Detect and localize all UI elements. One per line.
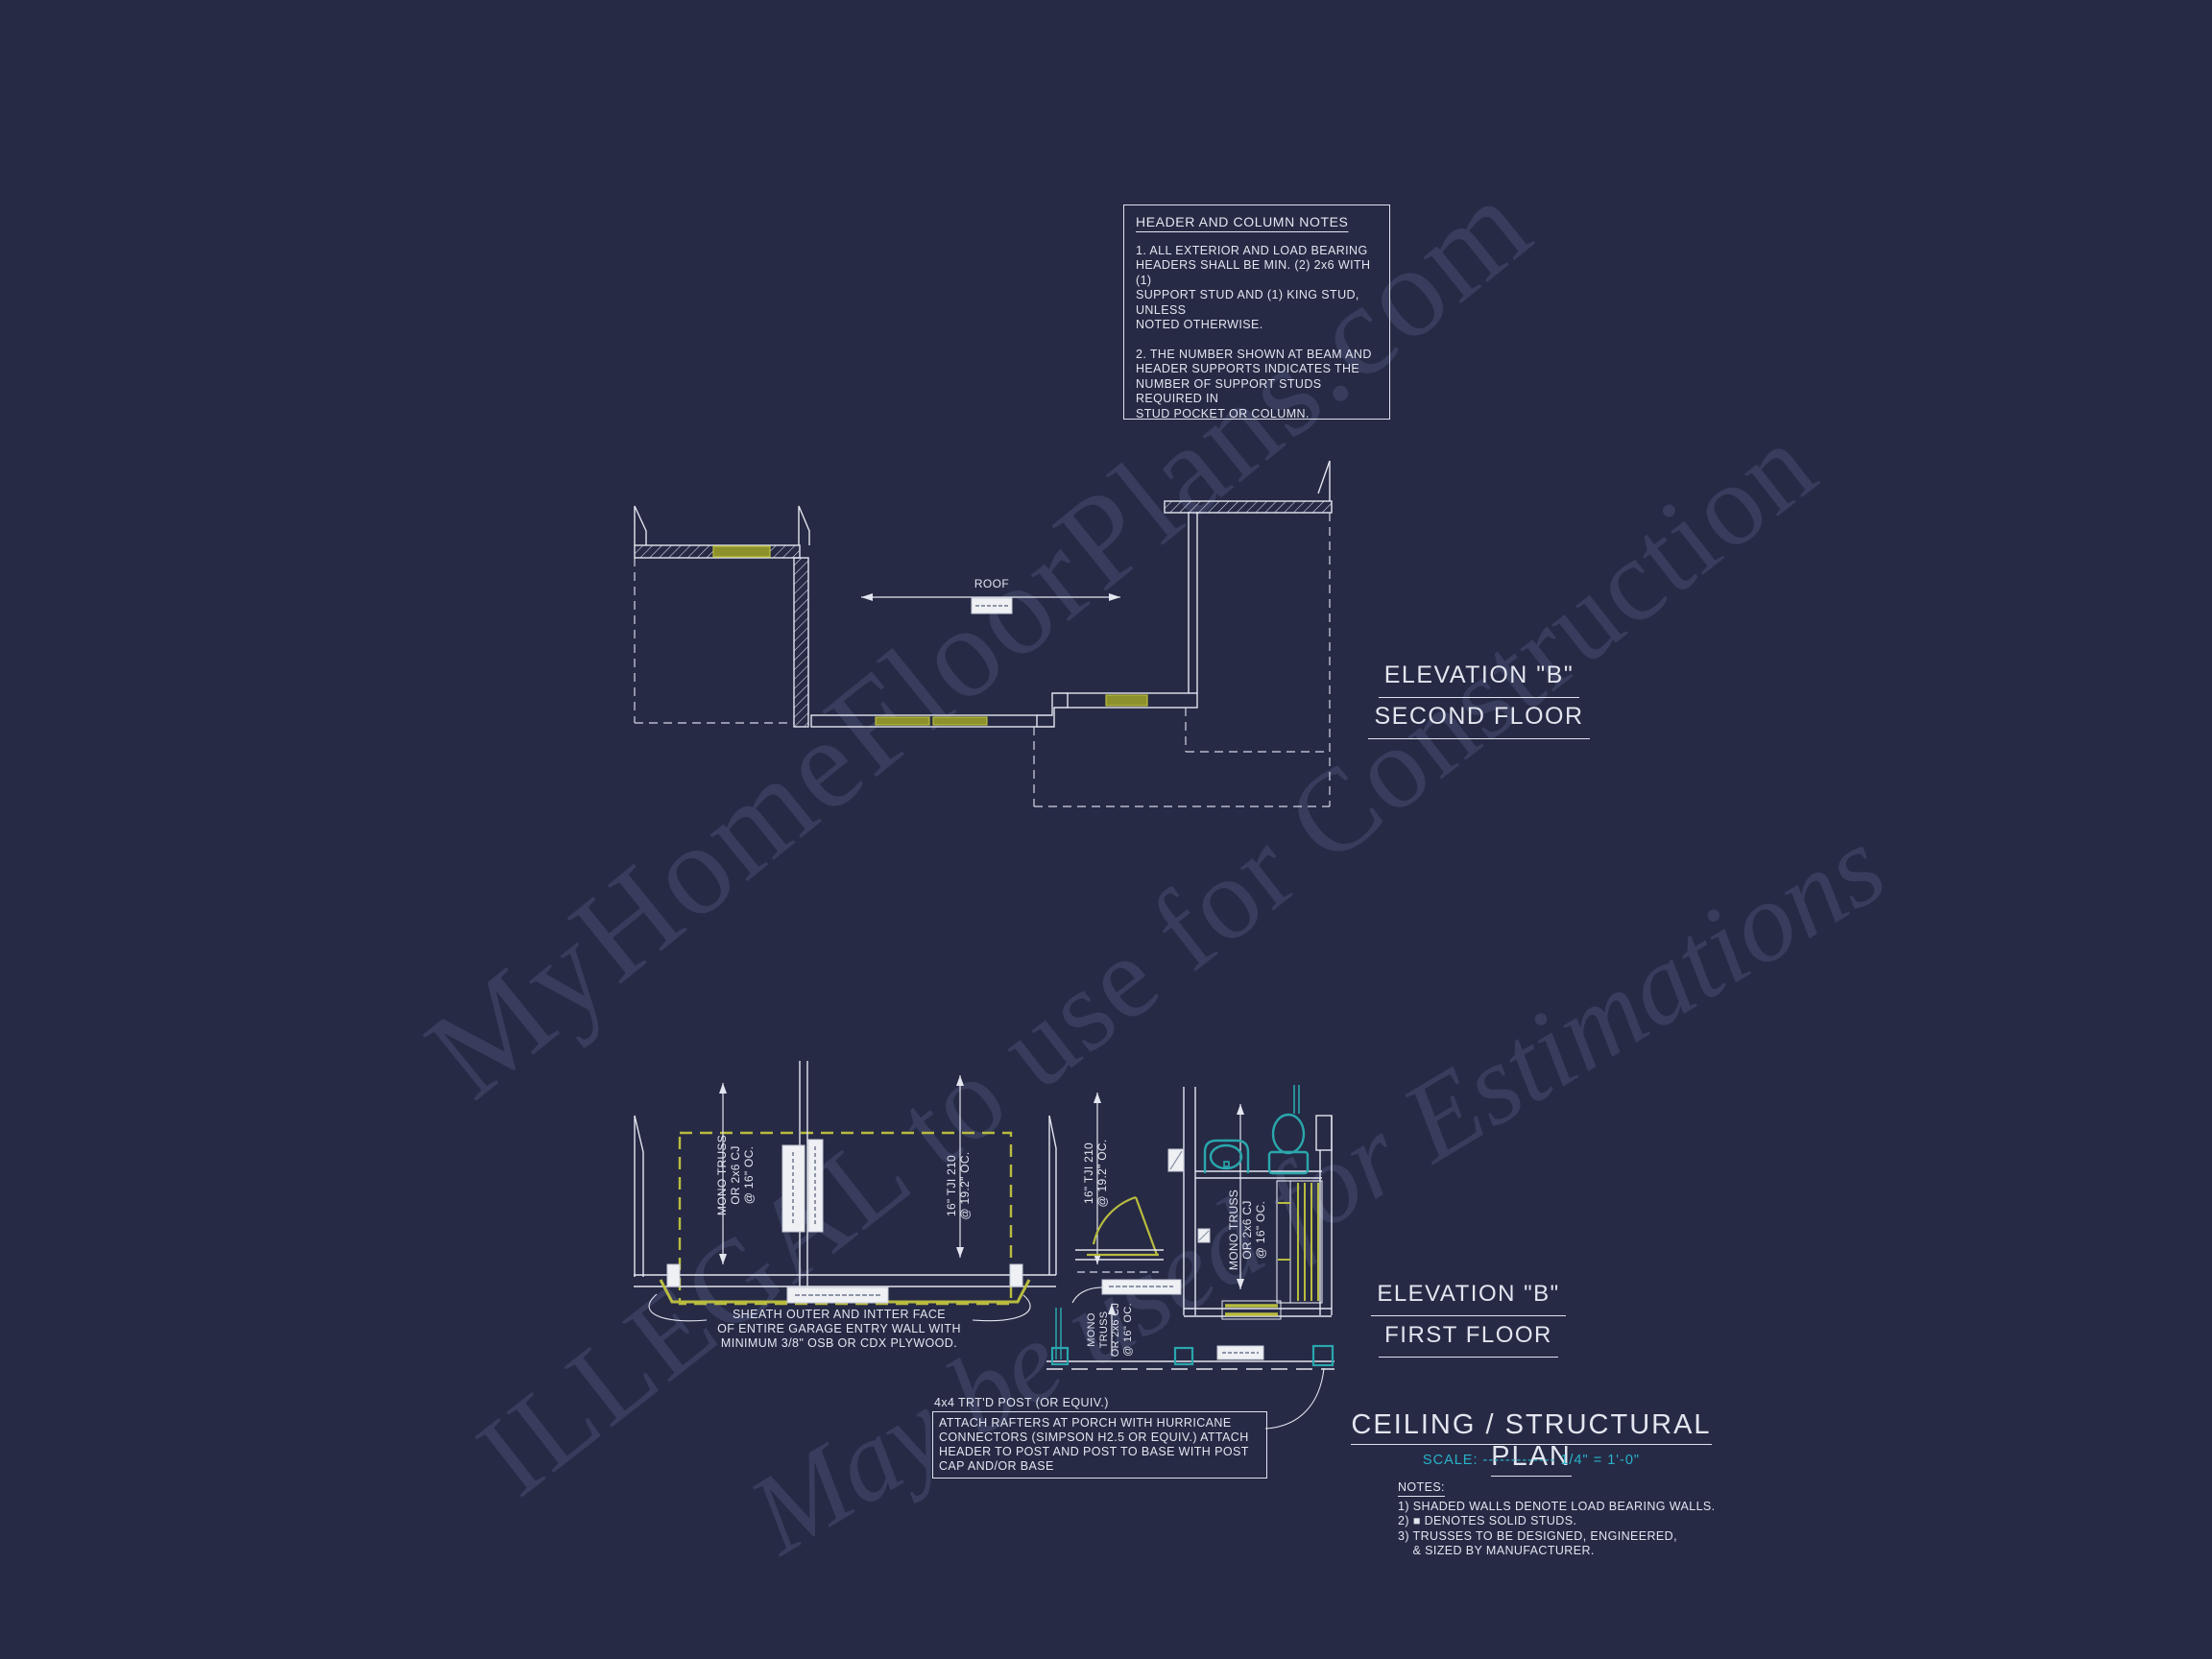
post-note-box: ATTACH RAFTERS AT PORCH WITH HURRICANE C… [932, 1411, 1267, 1479]
sink-fixture [1205, 1141, 1248, 1173]
roof-label: ROOF [968, 577, 1016, 590]
second-floor-title: ELEVATION "B" SECOND FLOOR [1361, 657, 1597, 739]
plan-notes: NOTES: 1) SHADED WALLS DENOTE LOAD BEARI… [1398, 1480, 1716, 1559]
beam-label-box [787, 1287, 888, 1303]
beam-label-box [782, 1140, 823, 1232]
toilet-fixture [1269, 1085, 1308, 1173]
leader-line [973, 1295, 1030, 1321]
joist-label-mono-bath: MONO TRUSS OR 2x6 CJ @ 16" OC. [1227, 1182, 1267, 1278]
sheath-note: SHEATH OUTER AND INTTER FACE OF ENTIRE G… [710, 1308, 968, 1351]
header-beam [1106, 695, 1147, 706]
leader-line [649, 1294, 707, 1321]
beam-label-box [1217, 1346, 1263, 1359]
joist-label-tji-hall: 16" TJI 210 @ 19.2" OC. [1082, 1125, 1109, 1221]
jamb-post [1010, 1264, 1022, 1286]
joist-label-mono-garage: MONO TRUSS OR 2x6 CJ @ 16" OC. [715, 1127, 756, 1223]
wall-step [1037, 693, 1068, 715]
header-beam [713, 546, 770, 557]
roof-beam-label-box [972, 598, 1012, 613]
plan-notes-body: 1) SHADED WALLS DENOTE LOAD BEARING WALL… [1398, 1500, 1716, 1559]
first-floor-title-line2: FIRST FLOOR [1379, 1316, 1558, 1358]
second-floor-title-line2: SECOND FLOOR [1368, 698, 1589, 739]
post-note-title: 4x4 TRT'D POST (OR EQUIV.) [934, 1396, 1109, 1409]
bearing-wall [1165, 501, 1332, 513]
plan-scale: SCALE: ------------- 1/4" = 1'-0" [1373, 1453, 1690, 1468]
bearing-wall [794, 558, 808, 727]
header-column-notes-box: HEADER AND COLUMN NOTES 1. ALL EXTERIOR … [1123, 204, 1390, 420]
jamb-post [667, 1264, 680, 1286]
joist-panel [1277, 1181, 1322, 1303]
header-notes-title: HEADER AND COLUMN NOTES [1136, 215, 1382, 230]
plan-notes-title: NOTES: [1398, 1480, 1716, 1496]
joist-label-tji-garage: 16" TJI 210 @ 19.2" OC. [945, 1138, 972, 1234]
first-floor-title-line1: ELEVATION "B" [1371, 1275, 1565, 1316]
wall-flag [635, 506, 646, 545]
plan-linework [0, 0, 2212, 1659]
second-floor-plan [635, 461, 1332, 806]
header-beam [933, 717, 987, 725]
roof-outline-dashed [1034, 513, 1330, 806]
second-floor-title-line1: ELEVATION "B" [1379, 657, 1579, 698]
wall-notch [1316, 1116, 1332, 1150]
leader-line [1265, 1368, 1324, 1429]
blueprint-sheet: { "colors": { "background": "#262a45", "… [0, 0, 2212, 1659]
first-floor-title: ELEVATION "B" FIRST FLOOR [1356, 1275, 1581, 1358]
joist-label-mono-porch: MONO TRUSS OR 2x6 CJ @ 16" OC. [1086, 1286, 1134, 1373]
scale-value: 1/4" = 1'-0" [1560, 1453, 1640, 1468]
scale-dashes: ------------- [1483, 1453, 1556, 1468]
header-beam [876, 717, 929, 725]
wall-flag [799, 506, 809, 545]
solid-stud-marker [1168, 1149, 1210, 1242]
header-note-2: 2. THE NUMBER SHOWN AT BEAM AND HEADER S… [1136, 348, 1382, 422]
header-note-1: 1. ALL EXTERIOR AND LOAD BEARING HEADERS… [1136, 244, 1382, 333]
scale-label: SCALE: [1423, 1453, 1479, 1468]
